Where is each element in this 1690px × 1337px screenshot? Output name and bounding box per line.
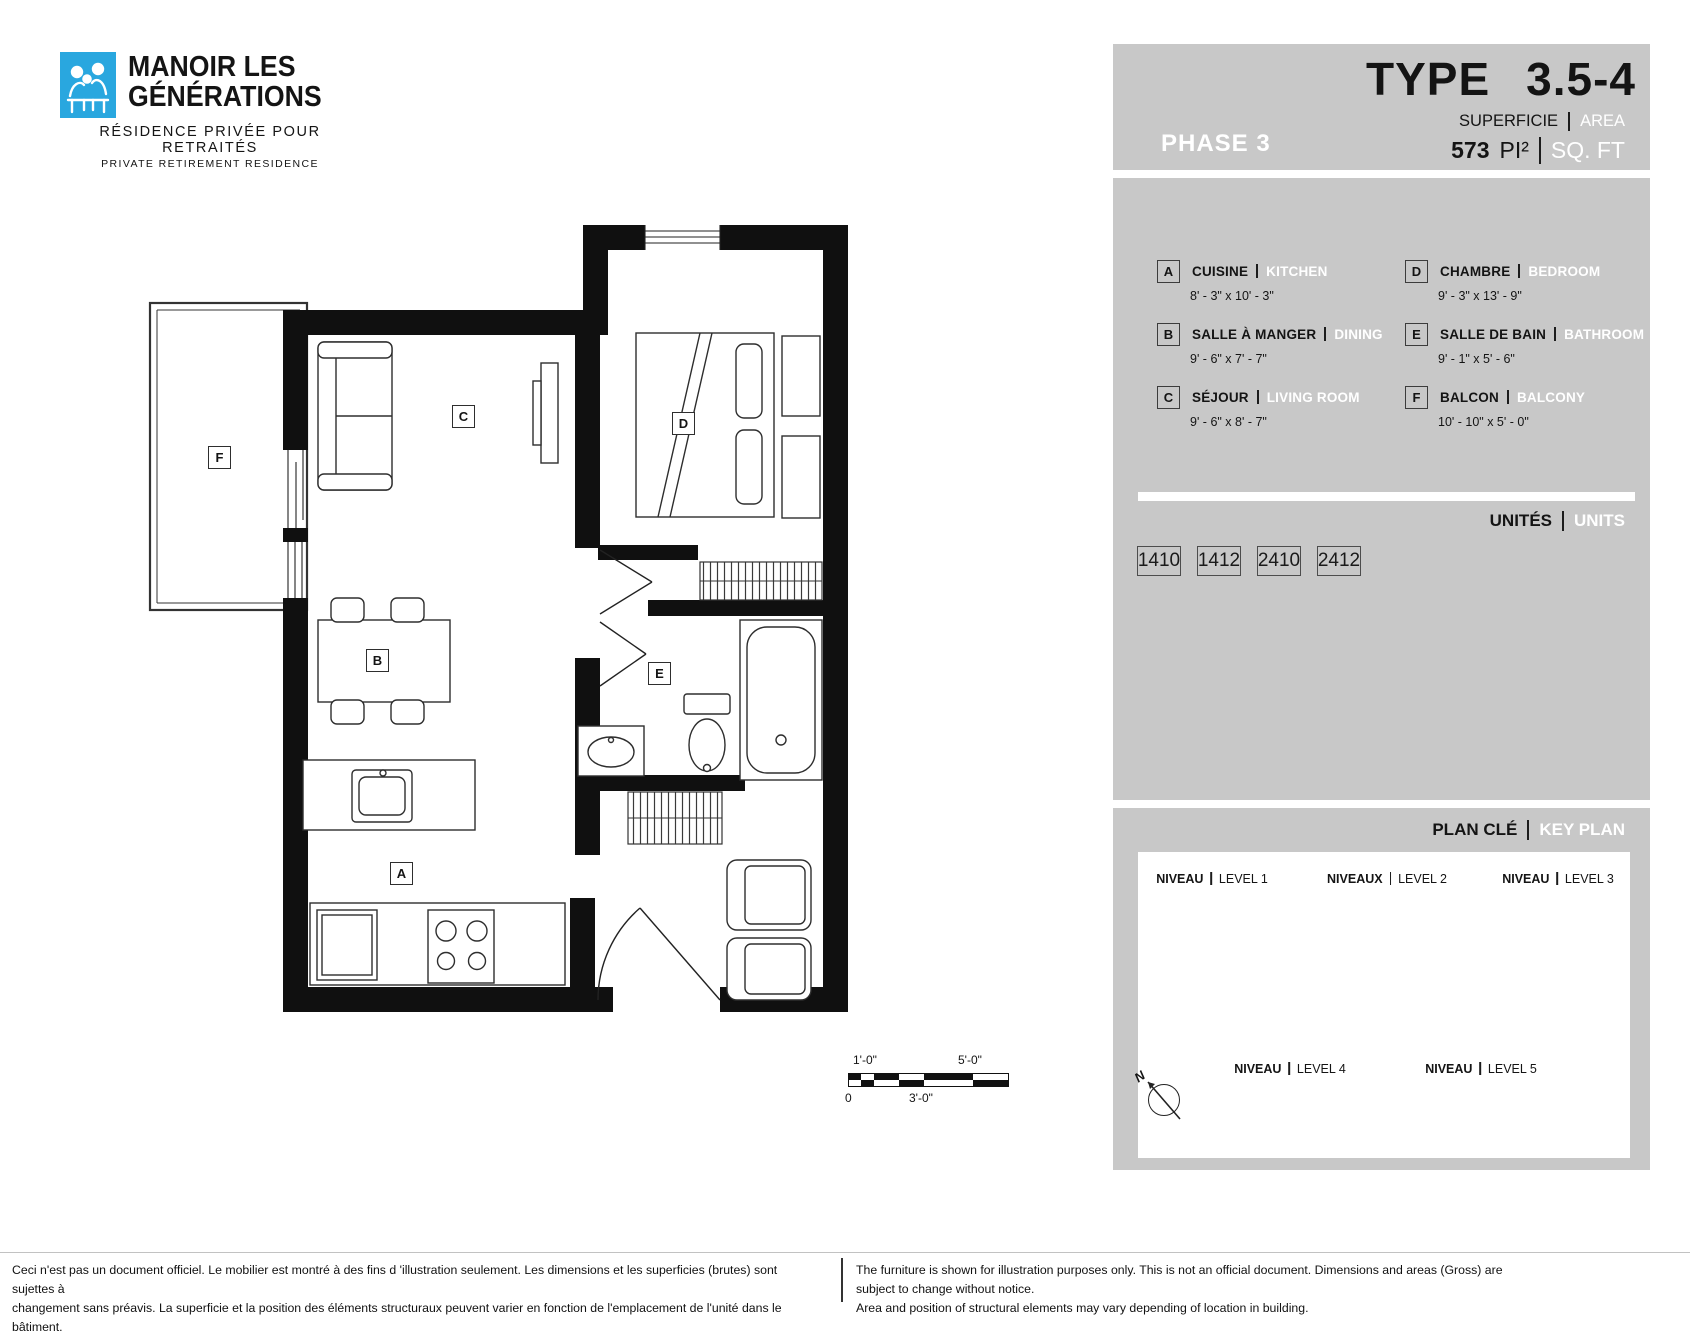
separator (1562, 511, 1564, 531)
units-label-fr: UNITÉS (1490, 511, 1552, 531)
room-name-en: BATHROOM (1564, 327, 1644, 342)
separator (1257, 390, 1259, 404)
plan-marker-dining: B (366, 649, 389, 672)
room-name-fr: CUISINE (1192, 264, 1248, 279)
separator (1568, 112, 1570, 131)
plan-marker-bathroom: E (648, 662, 671, 685)
level-3-label: NIVEAULEVEL 3 (1502, 872, 1614, 886)
disclaimer-english: The furniture is shown for illustration … (856, 1261, 1526, 1318)
level-label-fr: NIVEAU (1234, 1062, 1281, 1076)
area-value-row: 573 PI² SQ. FT (1451, 137, 1625, 164)
area-unit-fr: PI² (1499, 137, 1528, 164)
room-name-fr: SALLE À MANGER (1192, 327, 1316, 342)
unit-number: 1410 (1137, 546, 1181, 576)
type-label: TYPE (1366, 52, 1490, 106)
level-label-fr: NIVEAU (1502, 872, 1549, 886)
unit-number: 2410 (1257, 546, 1301, 576)
room-name-fr: BALCON (1440, 390, 1499, 405)
scale-bar: 1'-0" 5'-0" 0 3'-0" (845, 1053, 1015, 1107)
level-label-fr: NIVEAU (1156, 872, 1203, 886)
room-name-fr: SÉJOUR (1192, 390, 1249, 405)
room-name-en: DINING (1334, 327, 1382, 342)
room-dimensions: 10' - 10" x 5' - 0" (1438, 415, 1655, 429)
units-label-en: UNITS (1574, 511, 1625, 531)
room-name-en: KITCHEN (1266, 264, 1327, 279)
plan-marker-balcony: F (208, 446, 231, 469)
legend-room-dining: B SALLE À MANGERDINING 9' - 6" x 7' - 7" (1157, 323, 1407, 366)
plan-marker-kitchen: A (390, 862, 413, 885)
level-2-label: NIVEAUXLEVEL 2 (1327, 872, 1447, 886)
keyplan-title-en: KEY PLAN (1539, 820, 1625, 840)
legend-room-living: C SÉJOURLIVING ROOM 9' - 6" x 8' - 7" (1157, 386, 1407, 429)
level-label-en: LEVEL 1 (1219, 872, 1268, 886)
level-4-label: NIVEAULEVEL 4 (1234, 1062, 1346, 1076)
compass-needle (1141, 1077, 1187, 1123)
keyplan-canvas (1138, 852, 1630, 1158)
separator (1210, 872, 1212, 885)
room-dimensions: 9' - 6" x 8' - 7" (1190, 415, 1407, 429)
legend-letter: D (1405, 260, 1428, 283)
separator (1527, 820, 1529, 840)
plan-marker-living: C (452, 405, 475, 428)
disclaimer-french: Ceci n'est pas un document officiel. Le … (12, 1261, 782, 1337)
room-name-en: BEDROOM (1528, 264, 1600, 279)
room-name-en: BALCONY (1517, 390, 1585, 405)
level-label-en: LEVEL 4 (1297, 1062, 1346, 1076)
separator (1556, 872, 1558, 885)
room-name-fr: CHAMBRE (1440, 264, 1510, 279)
room-dimensions: 8' - 3" x 10' - 3" (1190, 289, 1407, 303)
disclaimer-en-line2: Area and position of structural elements… (856, 1299, 1526, 1318)
separator (1554, 327, 1556, 341)
separator (1479, 1062, 1481, 1075)
white-divider (1138, 492, 1635, 501)
room-dimensions: 9' - 1" x 5' - 6" (1438, 352, 1655, 366)
phase-label: PHASE 3 (1161, 130, 1271, 158)
keyplan-band: PLAN CLÉ KEY PLAN (1113, 808, 1650, 1170)
area-label-en: AREA (1580, 112, 1625, 131)
level-label-en: LEVEL 3 (1565, 872, 1614, 886)
room-name-en: LIVING ROOM (1267, 390, 1360, 405)
area-label-row: SUPERFICIE AREA (1459, 112, 1625, 131)
legend-letter: B (1157, 323, 1180, 346)
legend-band: A CUISINEKITCHEN 8' - 3" x 10' - 3" B SA… (1113, 178, 1650, 800)
room-dimensions: 9' - 3" x 13' - 9" (1438, 289, 1655, 303)
legend-letter: A (1157, 260, 1180, 283)
level-label-en: LEVEL 2 (1398, 872, 1447, 886)
north-arrow: N (1148, 1084, 1180, 1116)
level-1-label: NIVEAULEVEL 1 (1156, 872, 1268, 886)
type-value: 3.5-4 (1526, 52, 1636, 106)
separator (1507, 390, 1509, 404)
unit-type-title: TYPE 3.5-4 (1366, 52, 1636, 106)
header-band: PHASE 3 TYPE 3.5-4 SUPERFICIE AREA 573 P… (1113, 44, 1650, 170)
room-dimensions: 9' - 6" x 7' - 7" (1190, 352, 1407, 366)
scale-label-5ft: 5'-0" (958, 1053, 982, 1067)
disclaimer-fr-line2: changement sans préavis. La superficie e… (12, 1299, 782, 1337)
level-label-fr: NIVEAUX (1327, 872, 1383, 886)
disclaimer-divider (841, 1258, 843, 1302)
keyplan-title: PLAN CLÉ KEY PLAN (1432, 820, 1625, 840)
level-5-label: NIVEAULEVEL 5 (1425, 1062, 1537, 1076)
legend-letter: E (1405, 323, 1428, 346)
units-heading: UNITÉS UNITS (1490, 511, 1625, 531)
legend-room-bathroom: E SALLE DE BAINBATHROOM 9' - 1" x 5' - 6… (1405, 323, 1655, 366)
footer-rule (0, 1252, 1690, 1253)
area-unit-en: SQ. FT (1551, 137, 1625, 164)
area-value: 573 (1451, 137, 1489, 164)
legend-letter: C (1157, 386, 1180, 409)
plan-marker-bedroom: D (672, 412, 695, 435)
scale-label-1ft: 1'-0" (853, 1053, 877, 1067)
scale-label-3ft: 3'-0" (909, 1091, 933, 1105)
separator (1288, 1062, 1290, 1075)
disclaimer-fr-line1: Ceci n'est pas un document officiel. Le … (12, 1261, 782, 1299)
scale-bar-blocks (848, 1073, 1009, 1087)
disclaimer-en-line1: The furniture is shown for illustration … (856, 1261, 1526, 1299)
scale-label-0: 0 (845, 1091, 852, 1105)
legend-room-balcony: F BALCONBALCONY 10' - 10" x 5' - 0" (1405, 386, 1655, 429)
unit-number-list: 1410 1412 2410 2412 (1137, 546, 1361, 576)
separator (1256, 264, 1258, 278)
legend-room-kitchen: A CUISINEKITCHEN 8' - 3" x 10' - 3" (1157, 260, 1407, 303)
separator (1518, 264, 1520, 278)
legend-room-bedroom: D CHAMBREBEDROOM 9' - 3" x 13' - 9" (1405, 260, 1655, 303)
level-label-en: LEVEL 5 (1488, 1062, 1537, 1076)
separator (1539, 137, 1541, 164)
area-label-fr: SUPERFICIE (1459, 112, 1558, 131)
keyplan-title-fr: PLAN CLÉ (1432, 820, 1517, 840)
unit-number: 2412 (1317, 546, 1361, 576)
unit-number: 1412 (1197, 546, 1241, 576)
legend-letter: F (1405, 386, 1428, 409)
room-name-fr: SALLE DE BAIN (1440, 327, 1546, 342)
separator (1324, 327, 1326, 341)
separator (1390, 872, 1392, 885)
level-label-fr: NIVEAU (1425, 1062, 1472, 1076)
